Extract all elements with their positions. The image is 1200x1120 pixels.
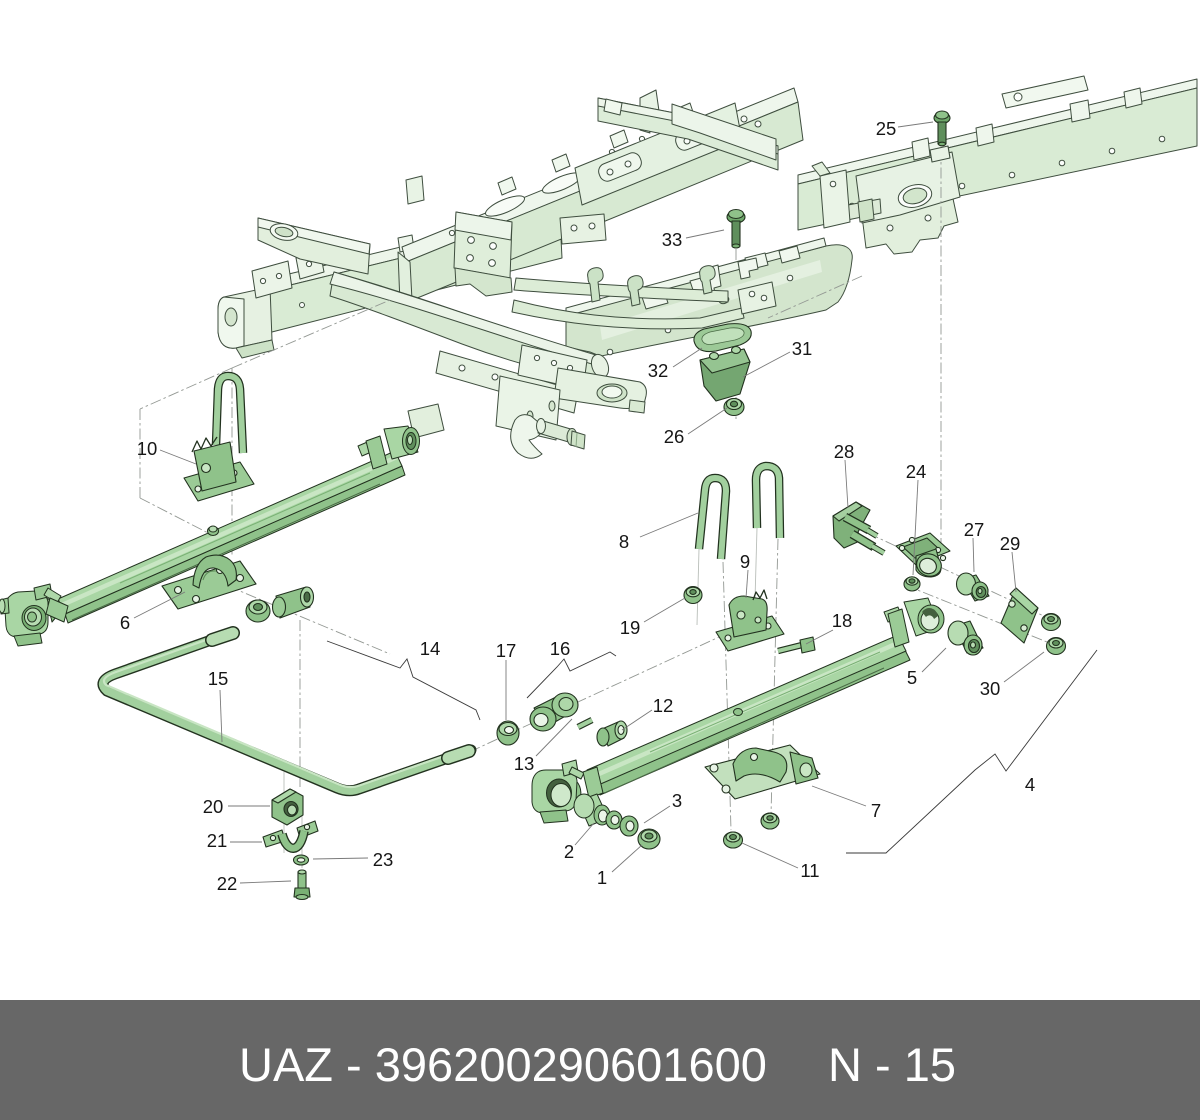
svg-text:25: 25 bbox=[876, 118, 897, 139]
svg-text:29: 29 bbox=[1000, 533, 1021, 554]
svg-text:2: 2 bbox=[564, 841, 574, 862]
svg-text:17: 17 bbox=[496, 640, 517, 661]
svg-text:11: 11 bbox=[800, 860, 819, 881]
svg-text:8: 8 bbox=[619, 531, 629, 552]
svg-text:14: 14 bbox=[420, 638, 441, 659]
svg-text:12: 12 bbox=[653, 695, 674, 716]
svg-text:31: 31 bbox=[792, 338, 813, 359]
svg-text:22: 22 bbox=[217, 873, 238, 894]
svg-text:UAZ - 396200290601600: UAZ - 396200290601600 bbox=[239, 1038, 767, 1091]
svg-text:7: 7 bbox=[871, 800, 881, 821]
svg-text:28: 28 bbox=[834, 441, 855, 462]
svg-text:6: 6 bbox=[120, 612, 130, 633]
svg-text:24: 24 bbox=[906, 461, 927, 482]
svg-text:20: 20 bbox=[203, 796, 224, 817]
svg-text:4: 4 bbox=[1025, 774, 1035, 795]
svg-text:26: 26 bbox=[664, 426, 685, 447]
svg-text:13: 13 bbox=[514, 753, 535, 774]
svg-text:5: 5 bbox=[907, 667, 917, 688]
svg-text:18: 18 bbox=[832, 610, 853, 631]
svg-text:9: 9 bbox=[740, 551, 750, 572]
svg-text:15: 15 bbox=[208, 668, 229, 689]
svg-text:1: 1 bbox=[597, 867, 607, 888]
svg-text:16: 16 bbox=[550, 638, 571, 659]
svg-text:19: 19 bbox=[620, 617, 641, 638]
svg-text:27: 27 bbox=[964, 519, 985, 540]
svg-text:21: 21 bbox=[207, 830, 228, 851]
svg-text:N - 15: N - 15 bbox=[828, 1038, 956, 1091]
svg-text:10: 10 bbox=[137, 438, 158, 459]
svg-text:32: 32 bbox=[648, 360, 669, 381]
svg-text:3: 3 bbox=[672, 790, 682, 811]
svg-text:33: 33 bbox=[662, 229, 683, 250]
svg-text:30: 30 bbox=[980, 678, 1001, 699]
svg-text:23: 23 bbox=[373, 849, 394, 870]
